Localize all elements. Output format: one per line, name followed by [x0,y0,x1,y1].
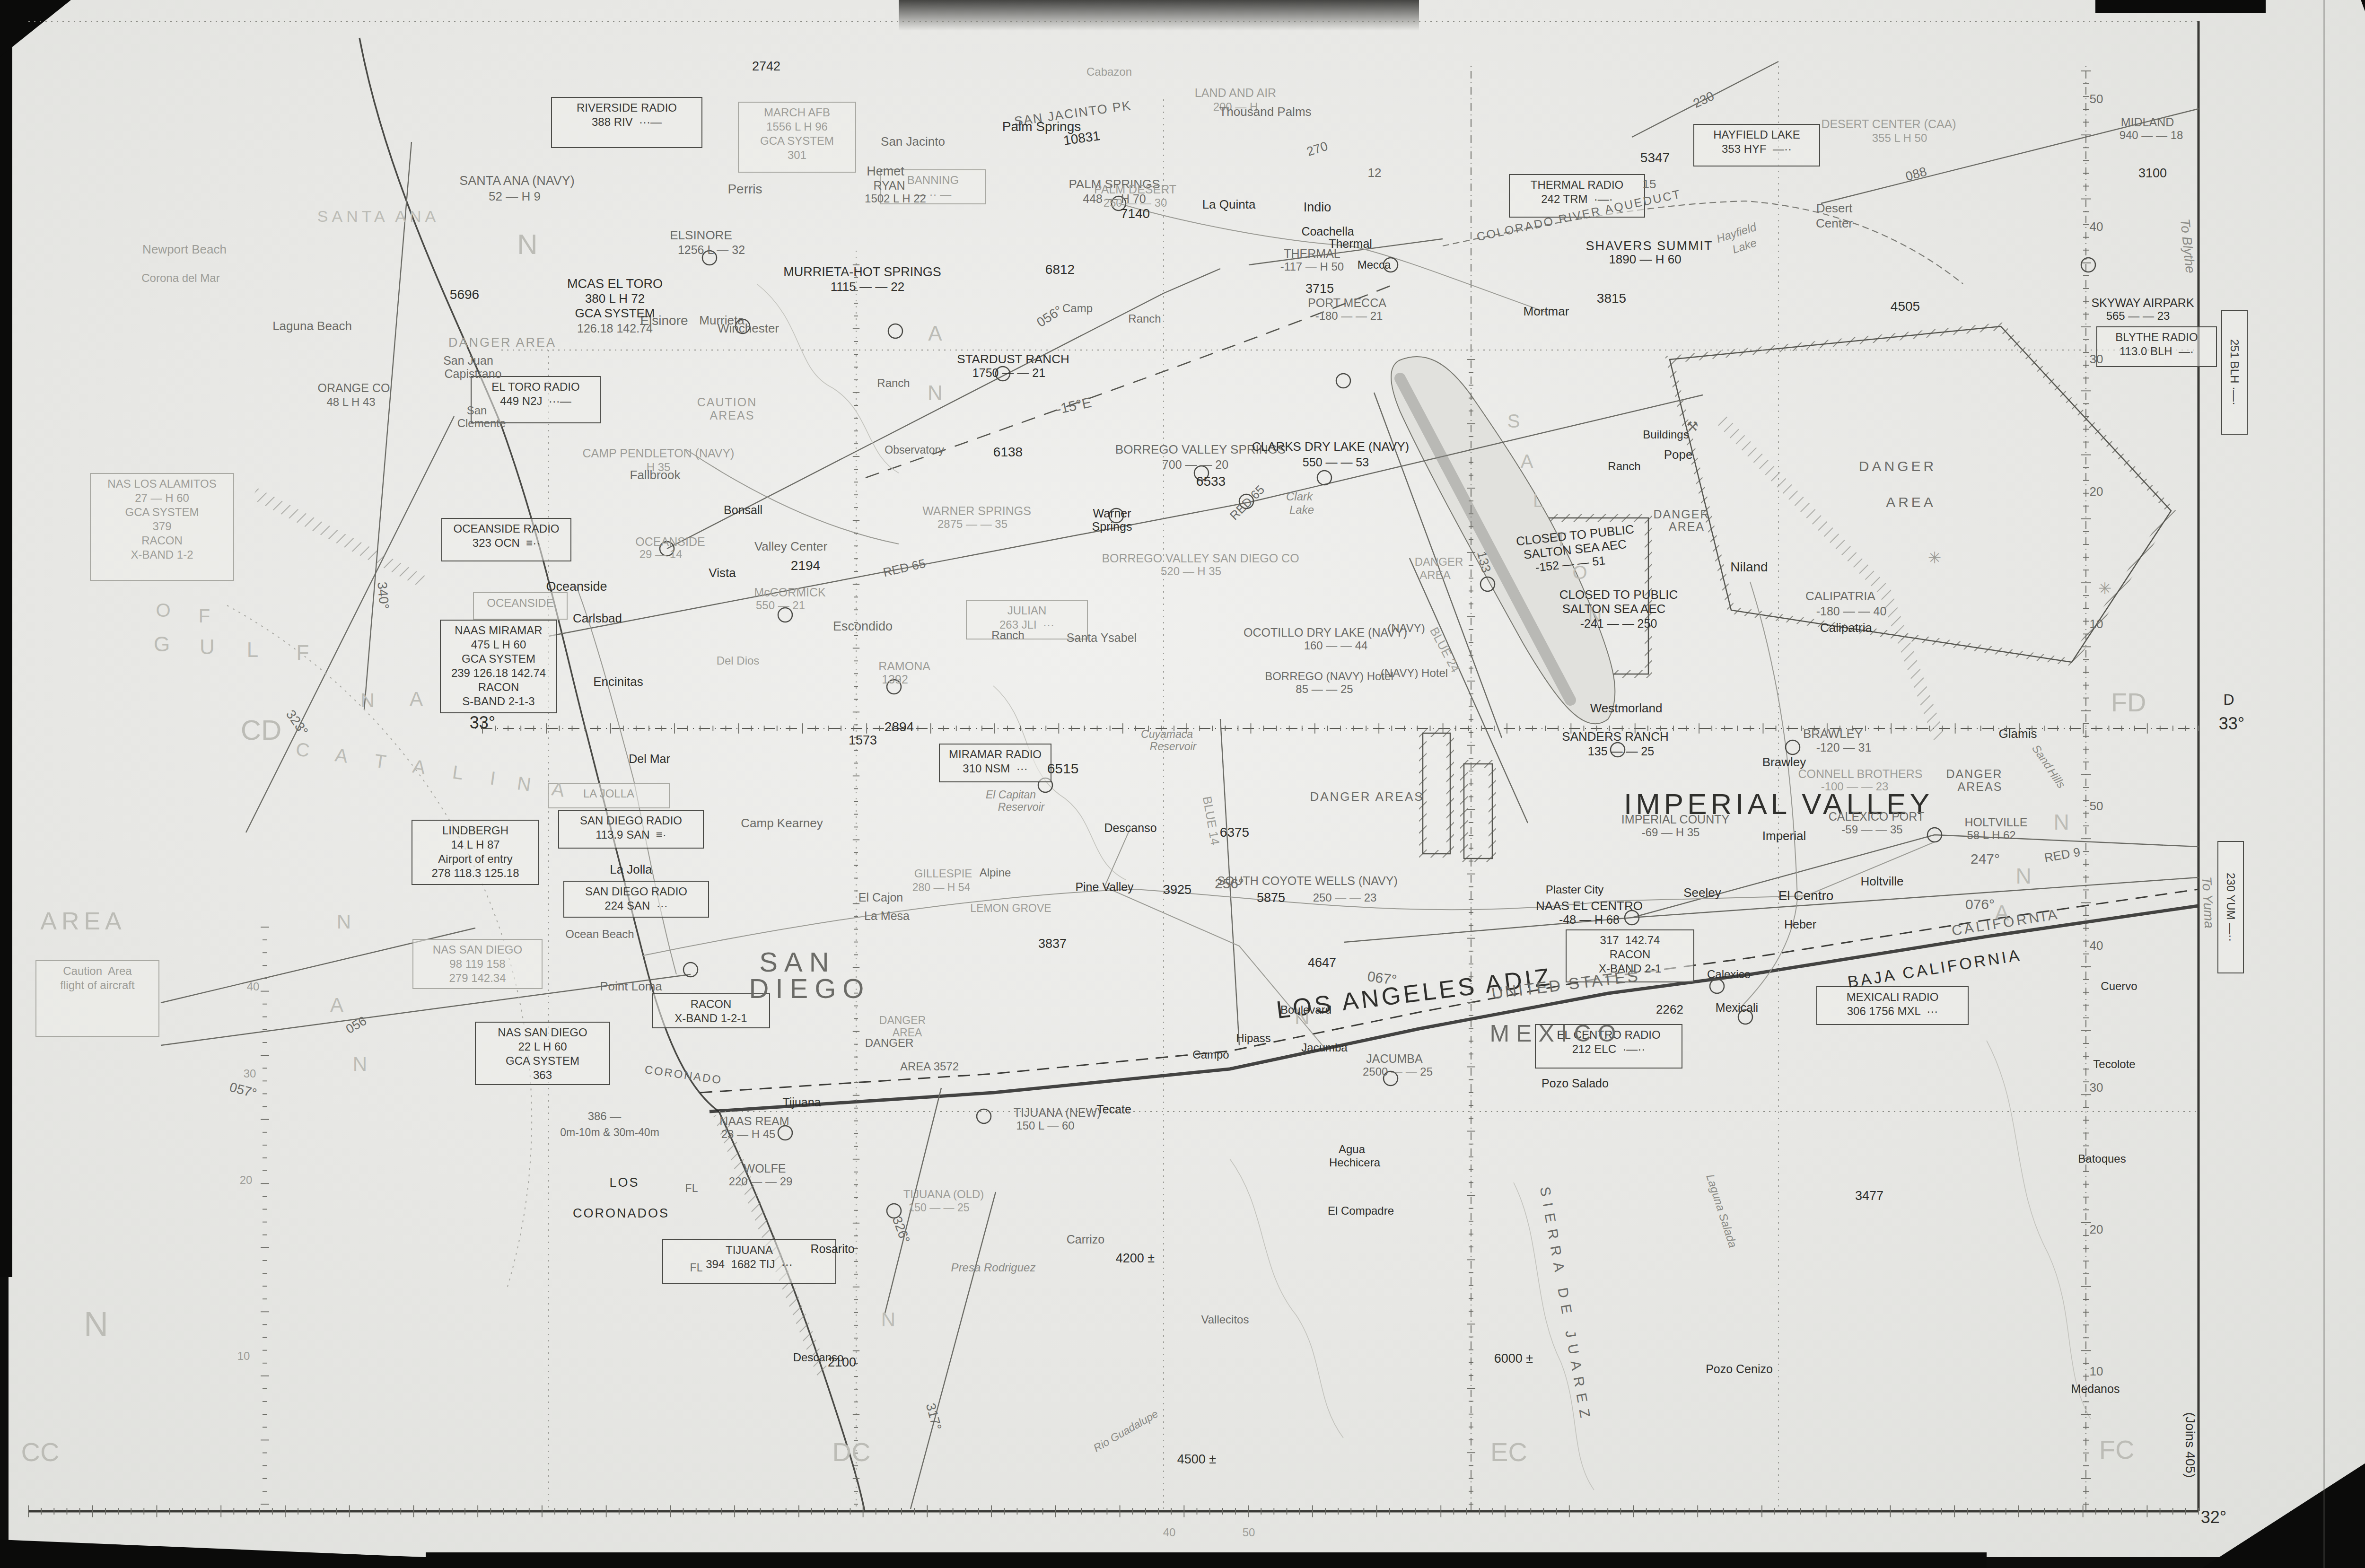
facility-box-line: MARCH AFB [743,105,851,120]
facility-box-line: BLYTHE RADIO [2101,330,2212,344]
map-label: ELSINORE [670,229,732,242]
map-label: 076° [1965,897,1995,912]
facility-box-line: 263 JLI ··· [971,618,1083,632]
map-label: Alpine [980,867,1011,878]
facility-box-line: 317 142.74 [1570,933,1690,947]
map-line-cont [1987,1041,2091,1419]
map-label: DANGER [865,1037,914,1049]
map-label: 2894 [885,720,914,734]
map-label: Ranch [1608,460,1640,472]
map-label: 6533 [1196,474,1226,488]
map-line-cont [1230,1159,1343,1438]
facility-box-line: 1556 L H 96 [743,120,851,134]
map-label: N [2053,811,2069,833]
map-label: CORONADOS [573,1207,669,1220]
map-label: TIJUANA (NEW) [1014,1106,1101,1119]
map-label: 20 [2090,1223,2103,1236]
map-label: Medanos [2071,1383,2120,1395]
map-label: DANGER [1859,459,1936,474]
map-label: NAAS EL CENTRO [1536,900,1643,912]
map-label: N [928,382,943,404]
map-label: 5875 [1257,891,1285,904]
map-label: 1392 [882,673,908,685]
map-label: 1573 [849,734,877,747]
map-label: 50 [2090,93,2103,105]
danger-area-boundary [1423,733,1450,854]
map-label: LOS [609,1176,639,1189]
edge-ident-text: 251 BLH ·—· [2228,313,2241,432]
map-label: CC [21,1438,60,1466]
map-label: AREAS [1958,780,2003,793]
map-label: G [154,633,170,655]
map-label: N [881,1309,895,1330]
map-label: 15 [1643,178,1656,191]
facility-box-line: 224 SAN ··· [568,899,704,913]
facility-box-line: RACON [445,680,552,694]
map-label: 6375 [1220,825,1249,839]
map-label: Del Mar [629,753,670,765]
map-label: La Mesa [864,910,910,922]
map-label: Thousand Palms [1219,105,1311,118]
airport-symbol [1317,471,1331,485]
map-label: 3815 [1597,291,1626,305]
map-label: BORREGO VALLEY SAN DIEGO CO [1102,552,1299,564]
map-label: Escondido [833,620,893,633]
map-label: Reservoir [998,801,1044,813]
map-label: CALEXICO PORT [1829,810,1924,823]
map-label: 135 — — 25 [1588,745,1654,757]
map-label: THERMAL [1284,247,1340,260]
facility-box: NAS SAN DIEGO98 119 158279 142.34 [412,939,543,989]
map-label: (Joins 405) [2183,1412,2197,1478]
airport-symbol [888,324,902,338]
facility-box-line: 379 [95,519,229,534]
map-label: DANGER [1654,508,1710,520]
map-label: 50 [2090,800,2103,813]
map-label: MURRIETA-HOT SPRINGS [783,265,941,279]
map-label: 1115 — — 22 [831,280,905,293]
facility-box-line: JULIAN [971,604,1083,618]
map-label: 550 — 21 [756,599,805,611]
facility-box: NAS SAN DIEGO22 L H 60GCA SYSTEM363 [475,1022,610,1085]
facility-box: NAS LOS ALAMITOS27 — H 60GCA SYSTEM379RA… [90,473,234,581]
map-label: Capistrano [445,368,502,380]
airport-symbol [1336,374,1350,388]
map-label: Mexicali [1716,1001,1758,1014]
map-label: 380 L H 72 [585,292,645,305]
map-label: Coachella [1301,225,1354,237]
map-label: AREA 3572 [900,1060,959,1072]
map-label: Descanso [793,1351,844,1363]
map-label: Heber [1784,918,1816,930]
edge-ident-box: 251 BLH ·—· [2221,310,2248,435]
map-label: DANGER [879,1015,926,1026]
map-label: 386 — [588,1110,622,1122]
facility-box-line: EL TORO RADIO [475,380,596,394]
map-label: 10 [2090,618,2103,631]
map-label: -120 — 31 [1816,741,1872,753]
map-label: El Compadre [1328,1205,1394,1217]
map-label: 3477 [1855,1189,1883,1202]
map-label: FL [690,1262,703,1273]
map-label: Ocean Beach [565,928,634,940]
map-label: JACUMBA [1366,1052,1422,1065]
map-line-road [643,842,1935,955]
map-label: IMPERIAL COUNTY [1621,813,1729,825]
facility-box-line: OCEANSIDE [478,596,563,610]
danger-area-boundary [1423,733,1450,854]
facility-box: MIRAMAR RADIO310 NSM ··· [939,744,1051,782]
map-label: 247° [1971,851,2000,867]
map-label: Rosarito [810,1243,854,1255]
map-label: Point Loma [600,980,662,993]
map-label: 550 — — 53 [1303,456,1369,468]
map-label: 10 [2090,1365,2103,1378]
facility-box-line: 475 L H 60 [445,638,552,652]
map-label: CAMP PENDLETON (NAVY) [583,447,735,459]
map-label: 355 L H 50 [1872,132,1927,144]
map-label: HOLTVILLE [1965,816,2028,828]
map-label: Presa Rodriguez [951,1261,1036,1273]
map-label: 126.18 142.74 [577,322,653,334]
map-label: 6515 [1047,761,1079,776]
facility-box-line: NAS SAN DIEGO [480,1025,605,1040]
facility-box-line: Airport of entry [416,852,534,866]
map-label: AREA [40,908,126,934]
map-line-cont [993,686,1126,880]
map-label: A [334,745,349,766]
map-label: 30 [2090,1081,2103,1094]
map-label: C [295,739,311,761]
map-label: GILLESPIE [914,867,972,879]
map-label: Palm Springs [1002,120,1081,133]
map-label: 2262 [1656,1003,1683,1016]
map-label: Del Dios [717,655,760,666]
map-label: Clark [1286,491,1313,502]
map-label: Pope [1664,448,1693,461]
map-label: Encinitas [593,675,643,688]
map-label: 1890 — H 60 [1609,253,1681,266]
map-label: 4647 [1308,956,1336,969]
map-label: SOUTH COYOTE WELLS (NAVY) [1217,875,1398,887]
map-label: 5696 [450,288,479,301]
map-label: SANTA ANA (NAVY) [459,174,575,187]
facility-box-line: 310 NSM ··· [944,762,1047,776]
map-label: CONNELL BROTHERS [1798,768,1922,780]
map-label: Carrizo [1067,1233,1105,1245]
map-label: CLARKS DRY LAKE (NAVY) [1252,440,1409,453]
map-label: 4500 ± [1177,1453,1216,1466]
map-label: 1750 — — 21 [972,367,1045,379]
map-label: -59 — — 35 [1841,823,1902,835]
map-label: Agua [1339,1143,1365,1155]
map-label: Descanso [1104,822,1156,834]
map-label: DIEGO [749,974,871,1003]
map-label: N [84,1306,108,1342]
map-label: Mortmar [1524,305,1569,318]
graticule-ticks [261,927,269,1504]
map-label: Vista [709,567,736,579]
map-label: MCAS EL TORO [567,277,663,290]
map-label: Indio [1304,201,1331,214]
map-line-hband [254,493,423,582]
facility-box: LINDBERGH14 L H 87Airport of entry278 11… [412,820,539,885]
facility-box-line: 113.0 BLH —· [2101,344,2212,359]
facility-box-line: 449 N2J ···— [475,394,596,408]
map-label: Center [1816,217,1853,230]
facility-box: HAYFIELD LAKE353 HYF —·· [1693,124,1820,166]
facility-box-line: X-BAND 1-2 [95,548,229,562]
map-label: Hipass [1236,1032,1270,1044]
facility-box-line: 353 HYF —·· [1698,142,1815,156]
map-label: San [467,404,487,416]
facility-box-line: LINDBERGH [416,823,534,838]
map-label: A [551,779,566,800]
edge-ident-text: 230 YUM —·· [2224,844,2237,971]
map-label: NAAS REAM [719,1115,789,1127]
map-label: 40 [1163,1526,1176,1538]
map-label: 220 — — 29 [729,1175,793,1187]
facility-box-line: GCA SYSTEM [480,1054,605,1068]
map-label: 32° [2201,1508,2226,1526]
map-label: FC [2099,1436,2135,1464]
map-label: 4505 [1891,299,1920,313]
facility-box-line: 279 142.34 [417,971,538,985]
facility-box-line: THERMAL RADIO [1514,178,1640,192]
edge-ident-box: 230 YUM —·· [2217,841,2244,973]
map-label: 150 — — 25 [908,1202,969,1213]
map-label: MIDLAND [2121,116,2174,128]
map-label: La Quinta [1202,198,1256,211]
map-label: PALM DESERT [1094,183,1176,195]
map-label: FL [685,1183,698,1194]
facility-box: EL TORO RADIO449 N2J ···— [471,376,601,423]
facility-box: RIVERSIDE RADIO388 RIV ···— [551,97,702,148]
map-label: 1502 L H 22 [865,193,926,204]
map-label: AREA [1669,520,1705,533]
map-line-border [709,906,2199,1112]
map-label: L [1533,491,1543,510]
map-label: A [928,323,942,344]
map-label: Boulevard [1280,1004,1331,1016]
map-label: DANGER AREAS [1310,790,1424,803]
map-label: Niland [1730,560,1768,574]
map-label: AREAS [710,409,755,421]
map-label: ✳ [2098,580,2112,597]
facility-box-line: MEXICALI RADIO [1821,990,1964,1004]
facility-box-line: 22 L H 60 [480,1040,605,1054]
airport-symbol [1786,740,1800,754]
map-label: Lake [1289,504,1314,516]
map-label: 40 [247,981,260,992]
airport-symbol [977,1109,991,1123]
map-label: 3837 [1038,937,1067,950]
facility-box-line: 301 [743,148,851,162]
map-label: 20 [240,1174,253,1186]
map-label: 150 L — 60 [1016,1120,1074,1131]
map-label: Imperial [1762,830,1806,842]
facility-box-line: flight of aircraft [40,978,155,992]
map-label: RYAN [873,179,905,192]
map-label: 3925 [1163,883,1191,896]
map-label: DANGER AREA [448,336,556,349]
map-line-awy [911,1192,996,1509]
map-label: 58 L H 62 [1967,829,2015,841]
facility-box: SAN DIEGO RADIO113.9 SAN ≡· [558,810,704,849]
map-label: 2500 — — 25 [1363,1066,1433,1077]
map-label: Observatory [885,444,944,456]
facility-box: MARCH AFB1556 L H 96GCA SYSTEM301 [738,102,856,173]
map-label: 33° [2219,715,2244,733]
facility-box-line: NAS SAN DIEGO [417,943,538,957]
map-label: 2194 [791,559,820,572]
map-label: STARDUST RANCH [957,353,1069,366]
map-label: 0m-10m & 30m-40m [560,1127,659,1138]
map-label: 30 [244,1068,256,1079]
facility-box-line: GCA SYSTEM [445,652,552,666]
map-label: S [1507,411,1520,431]
map-label: Calexico [1707,968,1751,980]
map-label: Newport Beach [142,243,227,256]
map-label: 2875 — — 35 [937,518,1007,530]
map-label: 700 — — 20 [1162,458,1228,471]
map-label: 48 L H 43 [326,396,375,408]
map-label: DANGER [1946,768,2003,780]
map-label: San Jacinto [881,135,945,148]
map-label: 12 [1368,166,1382,179]
map-label: OCEANSIDE [635,535,705,548]
map-line-road [686,449,899,544]
map-label: DESERT CENTER (CAA) [1821,118,1956,130]
map-label: N [2015,865,2031,887]
facility-box-line: RACON [95,534,229,548]
map-label: N [516,773,532,795]
facility-box-line: 363 [480,1068,605,1082]
facility-box-line: RIVERSIDE RADIO [556,101,698,115]
map-label: SANDERS RANCH [1562,730,1668,743]
map-label: 40 [2090,220,2103,233]
map-label: WARNER SPRINGS [922,505,1031,517]
map-label: OCOTILLO DRY LAKE (NAVY) [1244,626,1407,639]
map-label: Ranch [877,377,910,389]
map-label: Clemente [457,417,506,429]
facility-box-line: 27 — H 60 [95,491,229,505]
map-label: 20 [2090,485,2103,498]
map-label: LAND AND AIR [1195,87,1276,99]
map-label: Carlsbad [573,612,622,625]
map-label: D [2223,692,2234,708]
facility-box-line: S-BAND 2-1-3 [445,694,552,709]
facility-box: NAAS MIRAMAR475 L H 60GCA SYSTEM239 126.… [440,620,557,713]
map-label: Ranch [1128,313,1161,324]
map-label: Warner [1093,507,1131,519]
map-label: Jacumba [1301,1042,1347,1053]
map-label: N [337,911,351,932]
map-label: Westmorland [1590,702,1663,715]
map-label: Ranch [991,629,1024,641]
map-label: -117 — H 50 [1280,261,1344,272]
chart-map-area: RIVERSIDE RADIO388 RIV ···—MARCH AFB1556… [0,0,2365,1568]
map-label: -180 — — 40 [1816,605,1887,617]
map-label: Campo [1192,1049,1229,1060]
facility-box: OCEANSIDE [473,592,568,620]
map-label: LEMON GROVE [970,902,1051,914]
map-label: O [156,600,170,620]
map-label: 2742 [752,60,780,73]
airport-symbol [2081,258,2095,272]
map-label: San Juan [443,354,493,367]
map-label: RAMONA [878,660,930,672]
map-label: 1256 L — 32 [678,244,745,256]
map-label: Mecca [1358,259,1391,271]
map-label: Hechicera [1329,1156,1380,1168]
map-label: -69 — H 35 [1642,826,1700,838]
map-label: -241 — — 250 [1580,617,1657,630]
map-label: Springs [1092,520,1132,533]
facility-box-line: NAAS MIRAMAR [445,623,552,638]
map-label: Laguna Beach [272,320,352,333]
map-label: BORREGO (NAVY) Hotel [1265,670,1393,682]
map-label: SALTON SEA AEC [1562,603,1666,615]
map-label: SANTA ANA [317,208,439,225]
map-label: AREA [1886,495,1936,510]
facility-box: SAN DIEGO RADIO224 SAN ··· [563,881,709,918]
map-label: Corona del Mar [141,272,219,284]
map-label: PORT MECCA [1308,297,1386,309]
map-label: Tecolote [2093,1058,2135,1070]
facility-box-line: SAN DIEGO RADIO [568,885,704,899]
facility-box: MEXICALI RADIO306 1756 MXL ··· [1816,986,1969,1025]
map-label: 30 [2090,353,2103,366]
map-label: SKYWAY AIRPARK [2091,297,2194,309]
facility-box: BLYTHE RADIO113.0 BLH —· [2096,326,2217,367]
map-label: L [247,639,258,661]
danger-area-boundary [1464,764,1492,858]
facility-box-line: 278 118.3 125.18 [416,866,534,880]
facility-box: Caution Areaflight of aircraft [35,960,159,1037]
map-label: 565 — — 23 [2106,310,2170,322]
map-label: 7140 [1121,207,1150,220]
facility-box-line: NAS LOS ALAMITOS [95,477,229,491]
map-label: Pozo Salado [1542,1077,1609,1089]
map-label: Cuyamaca [1141,728,1193,740]
map-label: Holtville [1860,875,1903,888]
map-label: 33° [470,714,495,732]
map-label: U [200,636,215,658]
map-label: -180 — — 21 [1315,310,1383,322]
facility-box-line: TIJUANA [667,1243,832,1257]
map-label: MEXICO [1489,1021,1622,1046]
map-label: 4200 ± [1116,1252,1155,1265]
map-label: AREA [1419,569,1450,581]
map-label: 85 — — 25 [1296,683,1353,695]
map-label: Murrieta [699,314,744,327]
map-label: CD [241,715,282,745]
map-label: FD [2111,689,2146,717]
facility-box-line: HAYFIELD LAKE [1698,128,1815,142]
map-label: GCA SYSTEM [575,307,655,320]
map-label: N [517,229,537,259]
facility-box: OCEANSIDE RADIO323 OCN ≡·· [441,518,571,561]
map-label: Cuervo [2101,980,2137,992]
map-label: DC [832,1438,871,1466]
facility-box-line: X-BAND 1-2-1 [657,1011,765,1025]
map-label: El Capitan [986,789,1036,800]
map-label: Seeley [1683,886,1721,899]
map-linework [0,0,2365,1568]
map-label: N [353,1054,367,1075]
map-label: 6138 [993,445,1023,459]
